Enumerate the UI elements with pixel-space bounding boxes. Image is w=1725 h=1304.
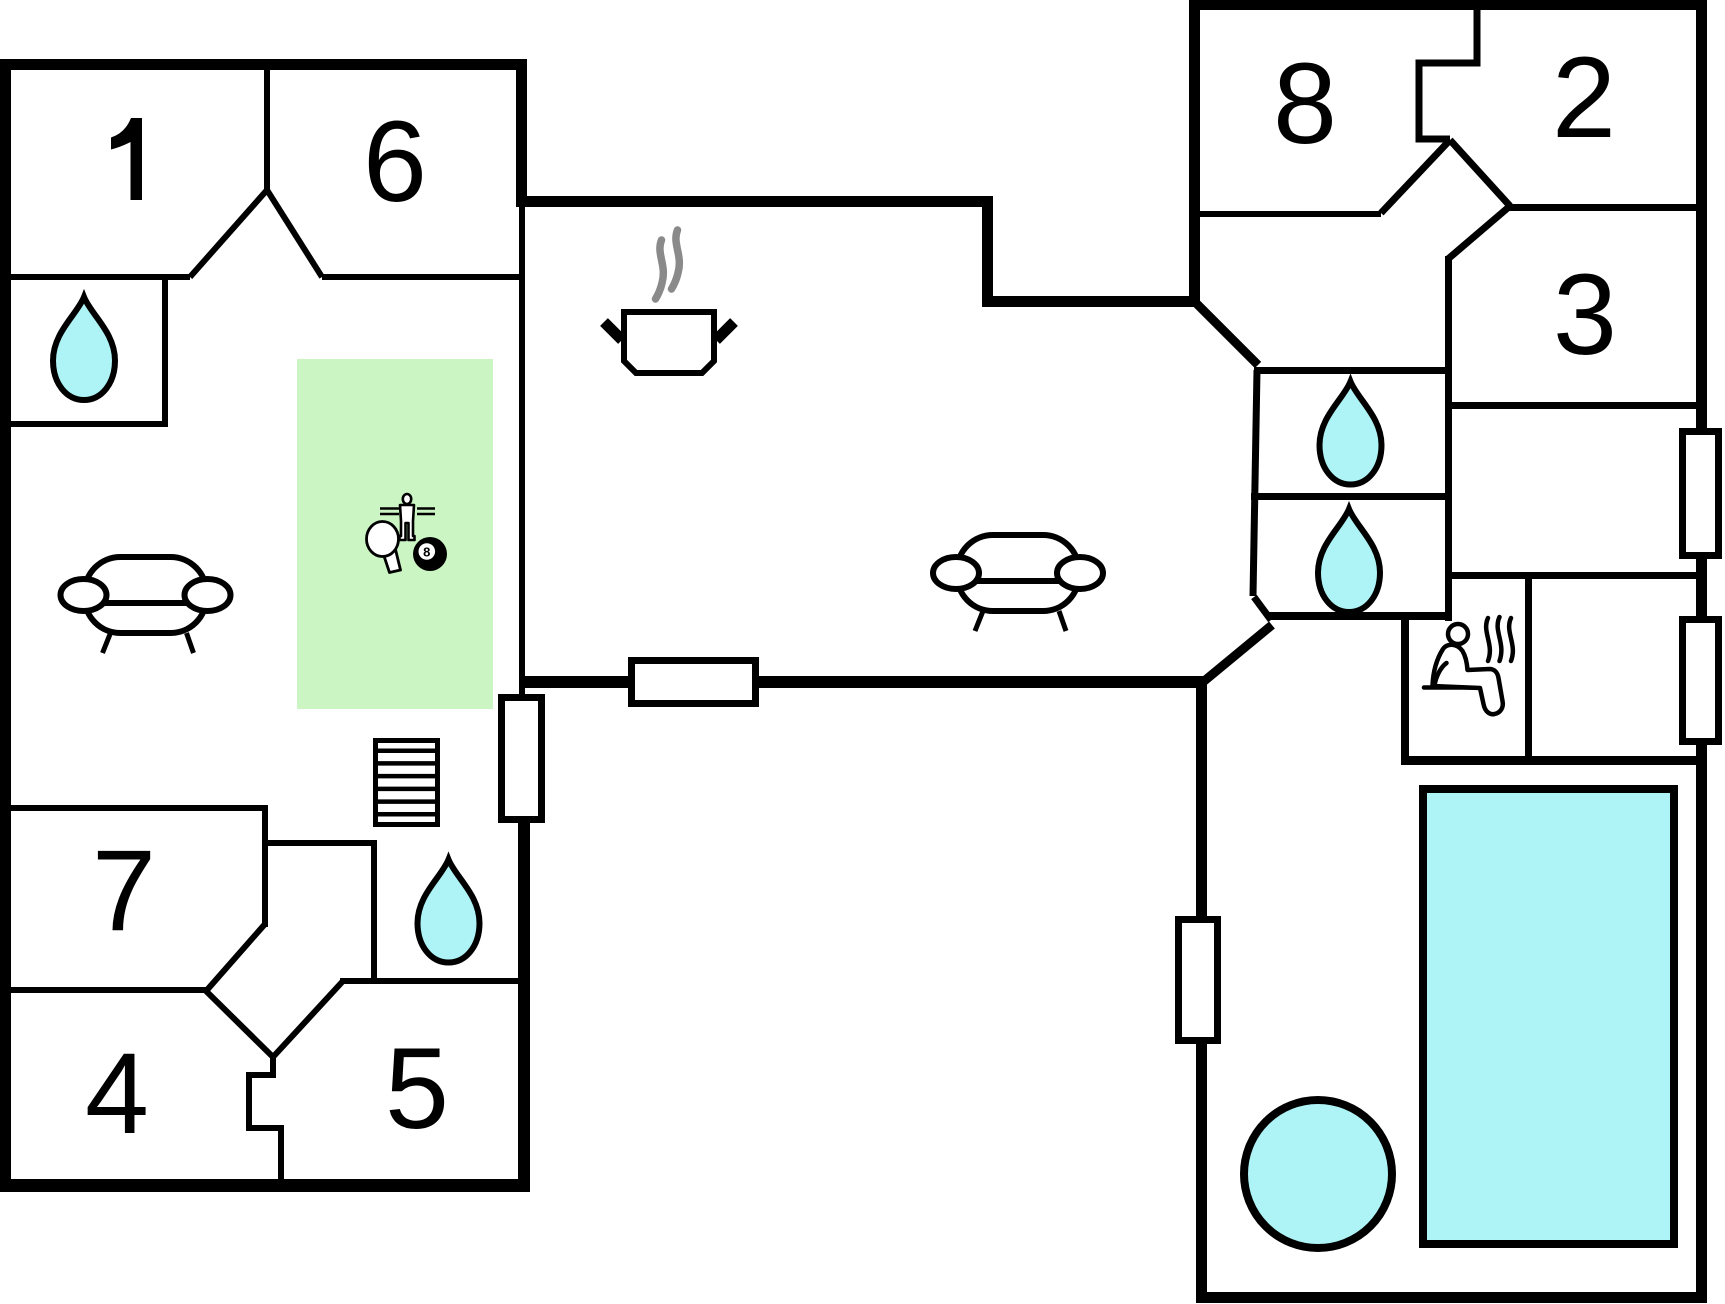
- svg-text:4: 4: [85, 1030, 149, 1158]
- svg-text:6: 6: [363, 98, 427, 226]
- svg-text:7: 7: [92, 827, 156, 955]
- svg-text:3: 3: [1553, 251, 1617, 379]
- svg-text:8: 8: [1273, 40, 1337, 168]
- svg-text:2: 2: [1552, 34, 1616, 162]
- svg-text:5: 5: [385, 1025, 449, 1153]
- svg-text:8: 8: [423, 545, 430, 560]
